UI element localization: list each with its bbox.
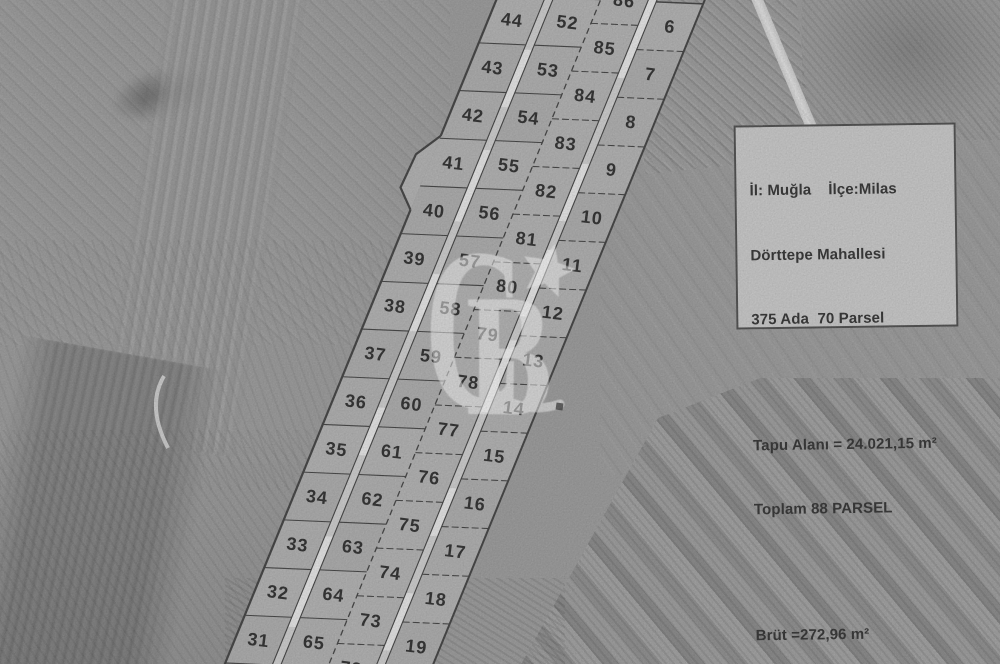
parcel-number-18: 18 [424,588,448,611]
info-line-tapu-alani: Tapu Alanı = 24.021,15 m² [753,432,950,456]
parcel-number-84: 84 [573,85,597,108]
parcel-number-39: 39 [402,247,426,270]
info-box: İl: Muğla İlçe:Milas Dörttepe Mahallesi … [734,122,959,329]
parcel-number-44: 44 [500,9,524,32]
parcel-number-36: 36 [344,390,368,413]
parcel-number-59: 59 [419,345,443,368]
parcel-number-74: 74 [378,562,402,585]
parcel-number-11: 11 [561,254,584,276]
parcel-number-40: 40 [422,200,446,223]
parcel-number-76: 76 [417,466,441,489]
parcel-number-55: 55 [497,154,521,177]
parcel-number-34: 34 [305,486,329,509]
parcel-number-53: 53 [536,59,560,82]
parcel-number-82: 82 [534,180,558,203]
parcel-number-16: 16 [463,492,487,515]
parcel-number-12: 12 [541,302,565,325]
parcel-number-75: 75 [398,514,422,537]
parcel-number-58: 58 [438,297,462,320]
parcel-number-62: 62 [360,488,384,511]
parcel-number-13: 13 [521,349,545,372]
parcel-number-10: 10 [580,206,604,229]
info-line-brut: Brüt =272,96 m² [756,622,953,646]
info-line-province: İl: Muğla İlçe:Milas [749,178,946,202]
parcel-number-14: 14 [502,397,526,420]
parcel-cells [225,0,703,664]
parcel-number-81: 81 [515,228,539,251]
parcel-number-63: 63 [341,536,365,559]
parcel-number-15: 15 [482,445,506,468]
parcel-number-37: 37 [363,343,387,366]
parcel-number-57: 57 [458,250,482,273]
parcel-number-64: 64 [321,584,345,607]
parcel-number-56: 56 [477,202,501,225]
parcel-number-54: 54 [516,107,540,130]
aerial-photo-scan: 4443424140393837363534333231525354555657… [0,0,1000,664]
parcel-number-73: 73 [359,609,383,632]
parcel-number-31: 31 [246,629,270,652]
info-line-district: Dörttepe Mahallesi [750,242,947,266]
parcel-number-17: 17 [443,540,467,563]
parcel-number-35: 35 [324,438,348,461]
watermark-trademark-dot [556,403,564,411]
parcel-number-83: 83 [554,132,578,155]
parcel-number-80: 80 [495,275,519,298]
parcel-number-79: 79 [476,323,500,346]
parcel-number-77: 77 [437,419,461,442]
parcel-number-32: 32 [266,581,290,604]
parcel-number-61: 61 [380,440,404,463]
parcel-number-33: 33 [285,533,309,556]
parcel-number-19: 19 [404,636,428,659]
info-line-ada-parsel: 375 Ada 70 Parsel [751,307,948,331]
parcel-number-85: 85 [593,37,617,60]
parcel-number-65: 65 [302,631,326,654]
info-line-toplam: Toplam 88 PARSEL [754,497,951,521]
parcel-number-52: 52 [555,11,579,34]
parcel-number-78: 78 [456,371,480,394]
parcel-number-38: 38 [383,295,407,318]
parcel-number-42: 42 [461,104,485,127]
parcel-number-41: 41 [441,152,465,175]
parcel-number-43: 43 [480,56,504,79]
parcel-number-60: 60 [399,393,423,416]
